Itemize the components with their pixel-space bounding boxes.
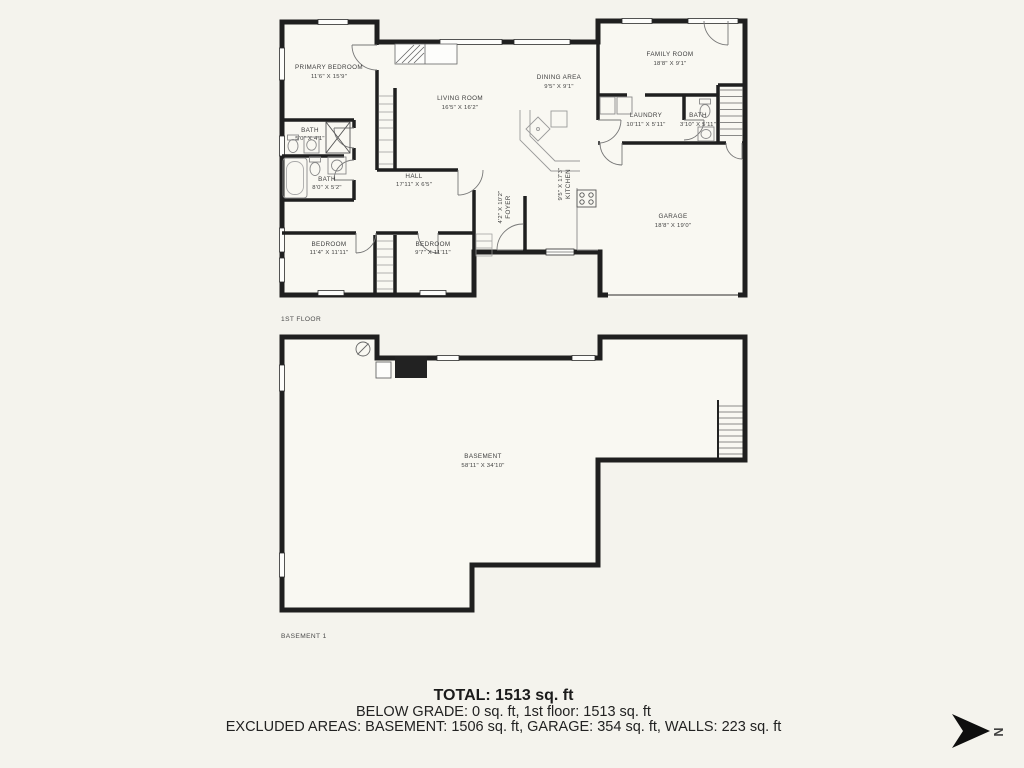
stair-void bbox=[395, 356, 427, 378]
window bbox=[622, 19, 652, 24]
area-summary: TOTAL: 1513 sq. ft BELOW GRADE: 0 sq. ft… bbox=[0, 687, 1007, 735]
room-dims: 9'7" X 11'11" bbox=[415, 250, 451, 256]
floor-plan-canvas: PRIMARY BEDROOM 11'6" X 15'9" LIVING ROO… bbox=[0, 0, 1024, 660]
window bbox=[280, 553, 285, 577]
window bbox=[572, 356, 595, 361]
room-label: LAUNDRY bbox=[630, 112, 663, 119]
room-label: FAMILY ROOM bbox=[646, 51, 693, 58]
room-label: GARAGE bbox=[658, 213, 687, 220]
room-dims: 10'11" X 5'11" bbox=[626, 122, 665, 128]
room-dims: 4'2" X 10'2" bbox=[498, 190, 504, 223]
window bbox=[280, 365, 285, 391]
window bbox=[420, 291, 446, 296]
window bbox=[318, 291, 344, 296]
window bbox=[688, 19, 738, 24]
room-label: BEDROOM bbox=[312, 241, 347, 248]
utility-box bbox=[376, 362, 391, 378]
room-dims: 18'8" X 19'0" bbox=[655, 223, 692, 229]
stairs-down-hatch bbox=[395, 44, 457, 64]
excluded-areas: EXCLUDED AREAS: BASEMENT: 1506 sq. ft, G… bbox=[0, 720, 1007, 735]
compass: N bbox=[948, 708, 1012, 756]
room-label: FOYER bbox=[505, 195, 512, 219]
below-grade-area: BELOW GRADE: 0 sq. ft, 1st floor: 1513 s… bbox=[0, 705, 1007, 720]
floor-plan-page: PRIMARY BEDROOM 11'6" X 15'9" LIVING ROO… bbox=[0, 0, 1024, 768]
room-label: HALL bbox=[405, 173, 422, 180]
window bbox=[280, 48, 285, 80]
north-arrow-icon: N bbox=[948, 708, 1012, 756]
window bbox=[318, 20, 348, 25]
first-floor-plan: PRIMARY BEDROOM 11'6" X 15'9" LIVING ROO… bbox=[280, 19, 746, 324]
room-dims: 17'11" X 6'5" bbox=[396, 182, 432, 188]
basement-plan: BASEMENT 58'11" X 34'10" BASEMENT 1 bbox=[280, 337, 746, 640]
room-dims: 5'0" X 4'1" bbox=[295, 136, 325, 142]
room-label: KITCHEN bbox=[565, 169, 572, 199]
window bbox=[514, 40, 570, 45]
basement-label: BASEMENT 1 bbox=[281, 633, 327, 640]
room-label: DINING AREA bbox=[537, 74, 582, 81]
room-dims: 8'0" X 5'2" bbox=[312, 185, 342, 191]
room-dims: 18'8" X 9'1" bbox=[653, 61, 686, 67]
window bbox=[280, 258, 285, 282]
room-dims: 3'10" X 5'11" bbox=[680, 122, 716, 128]
north-arrow bbox=[952, 714, 990, 748]
window bbox=[437, 356, 459, 361]
first-floor-label: 1ST FLOOR bbox=[281, 316, 321, 323]
room-dims: 16'5" X 16'2" bbox=[442, 105, 479, 111]
basement-exterior-walls bbox=[282, 337, 745, 610]
room-label: BATH bbox=[318, 176, 336, 183]
room-dims: 11'6" X 15'9" bbox=[311, 74, 347, 80]
window bbox=[280, 136, 285, 156]
room-label: LIVING ROOM bbox=[437, 95, 483, 102]
room-dims: 9'5" X 9'1" bbox=[544, 84, 574, 90]
room-label: BATH bbox=[689, 112, 707, 119]
room-dims: 9'5" X 17'3" bbox=[558, 167, 564, 200]
room-dims: 58'11" X 34'10" bbox=[461, 463, 504, 469]
room-label: BATH bbox=[301, 127, 319, 134]
room-label: PRIMARY BEDROOM bbox=[295, 64, 363, 71]
total-area: TOTAL: 1513 sq. ft bbox=[0, 687, 1007, 705]
room-dims: 11'4" X 11'11" bbox=[310, 250, 349, 256]
room-label: BEDROOM bbox=[416, 241, 451, 248]
north-label: N bbox=[991, 727, 1005, 736]
room-label: BASEMENT bbox=[464, 453, 501, 460]
